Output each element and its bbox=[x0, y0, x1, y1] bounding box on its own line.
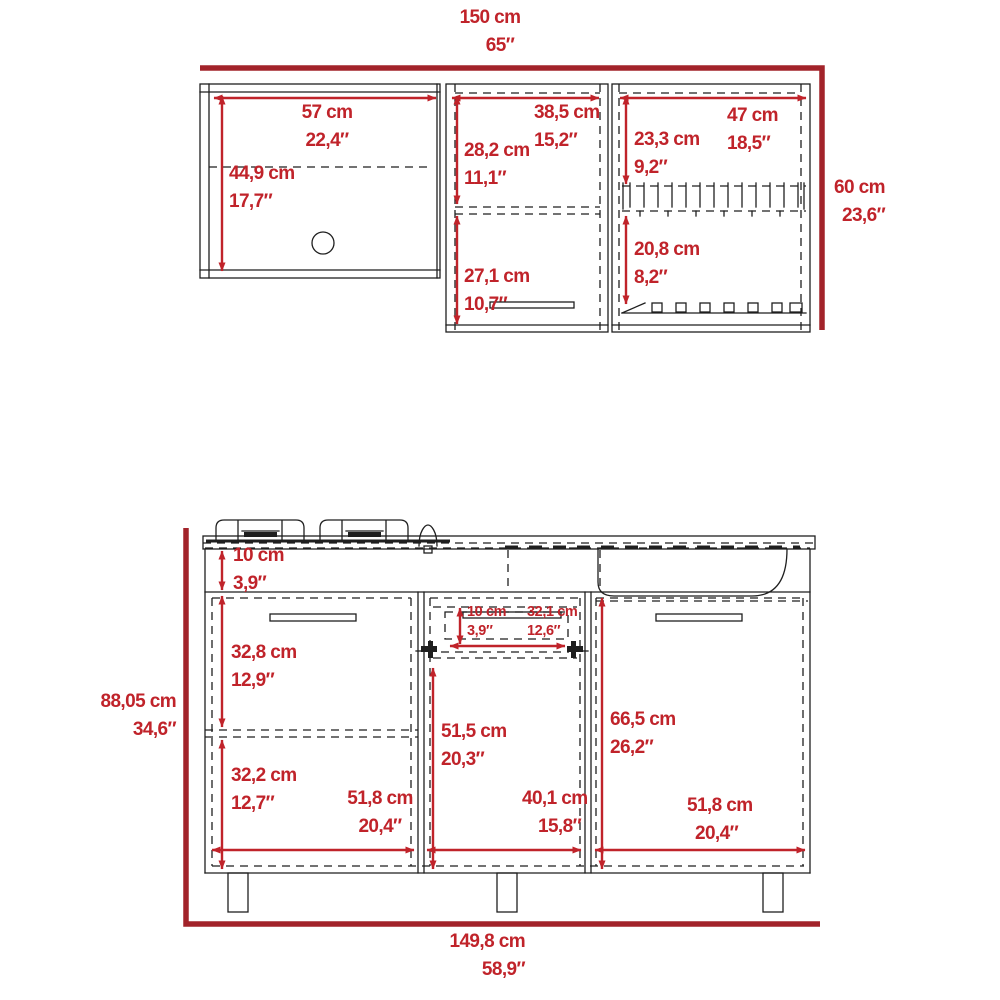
value-in: 58,9″ bbox=[390, 958, 525, 986]
value-in: 12,6″ bbox=[527, 624, 577, 643]
value-cm: 150 cm bbox=[420, 6, 560, 34]
cabinet-dimension-diagram: 150 cm 65″ 60 cm 23,6″ 57 cm 22,4″ 44,9 … bbox=[0, 0, 1000, 1000]
value-cm: 28,2 cm bbox=[464, 139, 530, 167]
value-in: 3,9″ bbox=[233, 572, 284, 600]
dim-lower-right-width: 51,8 cm 20,4″ bbox=[687, 794, 753, 850]
value-in: 20,3″ bbox=[441, 748, 507, 776]
value-cm: 60 cm bbox=[834, 176, 885, 204]
feet bbox=[228, 873, 783, 912]
value-in: 12,7″ bbox=[231, 792, 297, 820]
value-cm: 38,5 cm bbox=[534, 101, 600, 129]
value-cm: 40,1 cm bbox=[522, 787, 588, 815]
value-in: 17,7″ bbox=[229, 190, 295, 218]
dim-upper-left-width: 57 cm 22,4″ bbox=[262, 101, 392, 157]
dim-overall-lower-width: 149,8 cm 58,9″ bbox=[390, 930, 525, 986]
value-cm: 10 cm bbox=[233, 544, 284, 572]
dim-upper-right-top-height: 23,3 cm 9,2″ bbox=[634, 128, 700, 184]
dim-lower-left-bottom-height: 32,2 cm 12,7″ bbox=[231, 764, 297, 820]
value-in: 11,1″ bbox=[464, 167, 530, 195]
value-cm: 44,9 cm bbox=[229, 162, 295, 190]
dim-lower-middle-drawer-width: 32,1 cm 12,6″ bbox=[527, 605, 577, 643]
dim-lower-left-width: 51,8 cm 20,4″ bbox=[325, 787, 435, 843]
value-cm: 27,1 cm bbox=[464, 265, 530, 293]
sink bbox=[508, 549, 808, 601]
value-in: 15,2″ bbox=[534, 129, 600, 157]
stemware-rack bbox=[622, 303, 806, 313]
value-cm: 32,8 cm bbox=[231, 641, 297, 669]
value-cm: 32,2 cm bbox=[231, 764, 297, 792]
cooktop bbox=[206, 520, 450, 541]
dim-overall-upper-width: 150 cm 65″ bbox=[420, 6, 560, 62]
value-cm: 149,8 cm bbox=[390, 930, 525, 958]
value-cm: 51,8 cm bbox=[325, 787, 435, 815]
value-in: 65″ bbox=[430, 34, 570, 62]
dim-upper-right-width: 47 cm 18,5″ bbox=[727, 104, 778, 160]
value-cm: 47 cm bbox=[727, 104, 778, 132]
door-handle-right bbox=[656, 614, 742, 621]
dim-upper-middle-bottom-height: 27,1 cm 10,7″ bbox=[464, 265, 530, 321]
value-cm: 57 cm bbox=[262, 101, 392, 129]
value-in: 20,4″ bbox=[695, 822, 753, 850]
value-in: 26,2″ bbox=[610, 736, 676, 764]
value-cm: 23,3 cm bbox=[634, 128, 700, 156]
value-in: 23,6″ bbox=[842, 204, 885, 232]
upper-cabinet-right bbox=[612, 84, 810, 332]
value-cm: 10 cm bbox=[467, 605, 506, 624]
dim-lower-left-top-height: 32,8 cm 12,9″ bbox=[231, 641, 297, 697]
drawer-handle-left bbox=[270, 614, 356, 621]
dim-upper-right-bottom-height: 20,8 cm 8,2″ bbox=[634, 238, 700, 294]
dim-upper-left-height: 44,9 cm 17,7″ bbox=[229, 162, 295, 218]
value-in: 8,2″ bbox=[634, 266, 700, 294]
dim-lower-right-door-height: 66,5 cm 26,2″ bbox=[610, 708, 676, 764]
value-cm: 66,5 cm bbox=[610, 708, 676, 736]
door-knob bbox=[312, 232, 334, 254]
hinge-left bbox=[416, 641, 437, 658]
value-cm: 32,1 cm bbox=[527, 605, 577, 624]
dim-lower-countertop-band: 10 cm 3,9″ bbox=[233, 544, 284, 600]
value-cm: 51,8 cm bbox=[687, 794, 753, 822]
value-cm: 51,5 cm bbox=[441, 720, 507, 748]
value-cm: 88,05 cm bbox=[46, 690, 176, 718]
value-in: 15,8″ bbox=[538, 815, 588, 843]
plate-rack bbox=[622, 183, 806, 216]
value-in: 3,9″ bbox=[467, 624, 506, 643]
dim-overall-lower-height: 88,05 cm 34,6″ bbox=[46, 690, 176, 746]
value-cm: 20,8 cm bbox=[634, 238, 700, 266]
base-cabinet bbox=[203, 520, 815, 912]
dim-lower-middle-drawer-height: 10 cm 3,9″ bbox=[467, 605, 506, 643]
value-in: 22,4″ bbox=[262, 129, 392, 157]
dim-upper-middle-top-height: 28,2 cm 11,1″ bbox=[464, 139, 530, 195]
dim-lower-middle-width: 40,1 cm 15,8″ bbox=[522, 787, 588, 843]
value-in: 34,6″ bbox=[46, 718, 176, 746]
value-in: 20,4″ bbox=[325, 815, 435, 843]
dim-overall-upper-height: 60 cm 23,6″ bbox=[834, 176, 885, 232]
countertop bbox=[203, 536, 815, 549]
value-in: 9,2″ bbox=[634, 156, 700, 184]
value-in: 12,9″ bbox=[231, 669, 297, 697]
value-in: 18,5″ bbox=[727, 132, 778, 160]
dim-upper-middle-width: 38,5 cm 15,2″ bbox=[534, 101, 600, 157]
dim-lower-middle-door-height: 51,5 cm 20,3″ bbox=[441, 720, 507, 776]
value-in: 10,7″ bbox=[464, 293, 530, 321]
